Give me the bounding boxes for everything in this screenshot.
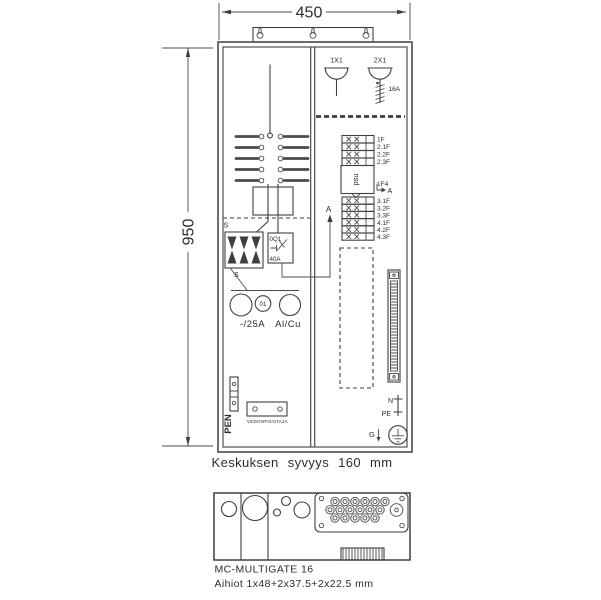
breaker-label: 3.2F xyxy=(377,205,390,212)
bottom-view: MC-MULTIGATE 16 Aihiot 1x48+2x37.5+2x22.… xyxy=(214,493,410,590)
keyhole-slot xyxy=(310,29,316,39)
dim-arrow-right xyxy=(397,10,406,14)
cable-gland-hole xyxy=(243,496,268,521)
handle-row: 01 -/25A Al/Cu xyxy=(230,269,301,331)
breaker-label: 3.1F xyxy=(377,198,390,205)
breaker-label: 1F xyxy=(377,137,385,144)
cable-gland-hole xyxy=(282,497,291,506)
section-a-label-left: A xyxy=(326,205,332,214)
breaker-label: 2.3F xyxy=(377,159,390,166)
socket2-label: 2X1 xyxy=(374,58,387,65)
dimension-height: 950 xyxy=(162,48,213,446)
handle-knob-right xyxy=(280,295,301,316)
socket-outlet-2: 2X1 16A xyxy=(368,58,401,104)
ground-arrow-down xyxy=(377,437,381,442)
section-wire-a: A xyxy=(282,205,333,277)
dim-arrow-top xyxy=(186,48,190,57)
breaker-group-1: 1F 2.1F 2.2F 2.3F xyxy=(342,136,390,167)
multigate-plate xyxy=(315,493,408,532)
breaker-label: 4.1F xyxy=(377,220,390,227)
terminal-strip xyxy=(388,270,400,382)
plate-screw xyxy=(319,496,323,500)
meter-module: psu 1F4 A xyxy=(341,166,393,198)
breaker-group-2: 3.1F 3.2F 3.3F 4.1F 4.2F 4.3F xyxy=(342,197,390,241)
earth-point: G xyxy=(369,426,407,445)
cabinet-drawing: 450 950 xyxy=(0,0,601,600)
left-separator: S xyxy=(223,218,310,230)
large-grommet xyxy=(390,504,403,517)
meter-label: psu xyxy=(351,173,360,185)
supply-rating-label: -/25A xyxy=(240,319,265,330)
strain-relief: VEDONPOISTAJA xyxy=(247,402,289,424)
section-arrow-up xyxy=(327,215,332,223)
cabinet-frame xyxy=(218,42,412,452)
earth-symbol xyxy=(392,429,404,442)
dimension-width: 450 xyxy=(219,3,410,40)
compartment-divider xyxy=(311,47,315,447)
busbar-terminals xyxy=(259,134,283,183)
dim-height-label: 950 xyxy=(181,219,198,246)
breaker-label: 2.2F xyxy=(377,152,390,159)
cable-gland-hole xyxy=(222,502,237,517)
strain-relief-label: VEDONPOISTAJA xyxy=(247,419,289,424)
depth-note: Keskuksen syvyys 160 mm xyxy=(212,455,393,470)
comb-strip xyxy=(341,548,384,560)
fuse-rating-label: 16A xyxy=(389,86,401,93)
handle-label: 01 xyxy=(260,301,267,308)
breaker-label: 3.3F xyxy=(377,213,390,220)
switch-rating: 40A xyxy=(270,256,282,263)
keyhole-slot xyxy=(363,29,369,39)
breaker-label: 4.2F xyxy=(377,227,390,234)
pe-label: PE xyxy=(382,411,392,418)
cad-drawing-canvas: 450 950 xyxy=(0,0,601,600)
reserve-space-outline xyxy=(340,248,373,388)
section-arrow-right xyxy=(382,188,387,193)
plate-screw xyxy=(400,523,404,527)
cable-gland-hole xyxy=(294,502,310,518)
neutral-label: N xyxy=(388,398,393,405)
ground-ref-label: G xyxy=(369,430,375,439)
plate-screw xyxy=(400,496,404,500)
breaker-label: 4.3F xyxy=(377,234,390,241)
gland-plate-blanks: Aihiot 1x48+2x37.5+2x22.5 mm xyxy=(215,578,374,590)
pen-label: PEN xyxy=(223,414,234,434)
mounting-bracket xyxy=(253,28,373,43)
npe-symbol xyxy=(394,395,403,416)
dim-width-label: 450 xyxy=(296,5,323,22)
handle-knob-left xyxy=(230,294,252,316)
section-s-label: S xyxy=(224,223,229,230)
main-switch-box: 0Q1 40A xyxy=(268,233,293,263)
fuse-switch-block: S xyxy=(225,232,263,279)
dim-arrow-left xyxy=(222,10,231,14)
keyhole-slot xyxy=(257,29,263,39)
breaker-label: 2.1F xyxy=(377,144,390,151)
meter-frame xyxy=(253,187,293,215)
conductor-label: Al/Cu xyxy=(275,319,301,330)
cable-gland-hole xyxy=(274,509,281,516)
cable-bay-lines xyxy=(241,493,268,560)
multigate-grommets xyxy=(326,497,403,522)
pen-terminal: PEN xyxy=(223,377,238,434)
socket-outlet-1: 1X1 xyxy=(324,58,349,97)
socket1-label: 1X1 xyxy=(330,58,343,65)
meter-ref-label: 1F4 xyxy=(377,181,389,188)
dim-arrow-bottom xyxy=(186,437,190,446)
busbar-assembly xyxy=(236,65,308,234)
gland-plate-product: MC-MULTIGATE 16 xyxy=(215,564,314,576)
section-a-label-right: A xyxy=(388,188,393,195)
npe-terminal: N PE xyxy=(382,395,403,418)
plate-screw xyxy=(319,523,323,527)
